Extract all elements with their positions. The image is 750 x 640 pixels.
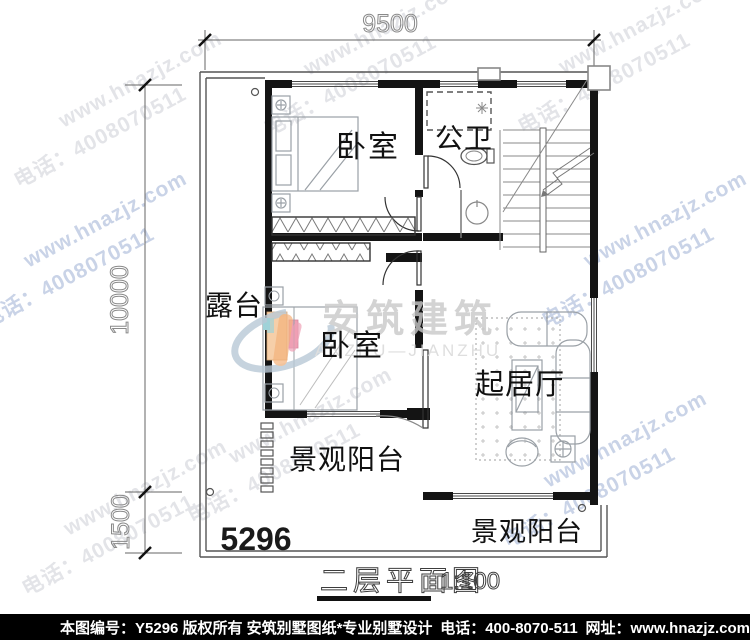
footer-site: 网址：www.hnazjz.com (586, 617, 750, 638)
label-balcony-left: 景观阳台 (289, 444, 405, 475)
dim-left-main-value: 10000 (106, 265, 134, 335)
logo-teal-stroke (267, 318, 274, 333)
drawing-sheet: www.hnazjz.com电话：4008070511www.hnazjz.co… (0, 0, 750, 640)
footer-bar: 本图编号：Y5296 版权所有 安筑别墅图纸*专业别墅设计 电话：400-807… (0, 614, 750, 640)
dim-top-value: 9500 (362, 10, 418, 38)
dimension-top: 9500 (198, 10, 601, 70)
footer-copyright: 版权所有 (182, 617, 242, 638)
label-plan-number: 5296 (220, 521, 291, 557)
dim-left-lower-value: 1500 (107, 494, 135, 550)
label-living-room: 起居厅 (475, 368, 565, 401)
bathroom-fixtures (427, 92, 494, 238)
sheet-title-scale: 1:100 (440, 568, 500, 595)
label-bedroom-top: 卧室 (336, 131, 400, 164)
footer-phone: 电话：400-8070-511 (440, 617, 578, 638)
label-terrace: 露台 (205, 290, 263, 321)
dimension-left: 10000 1500 (106, 79, 182, 559)
balcony-trellis (261, 423, 273, 492)
label-bathroom: 公卫 (435, 123, 493, 154)
label-balcony-bottom: 景观阳台 (471, 517, 583, 547)
footer-sheet-no: 本图编号：Y5296 (60, 617, 178, 638)
floor-plan-drawing: 9500 10000 1500 (0, 0, 750, 614)
sheet-title: 二层平面图 1:100 (317, 565, 500, 601)
staircase (500, 80, 594, 252)
label-bedroom-bottom: 卧室 (320, 330, 384, 363)
title-underline (317, 596, 431, 601)
footer-brand: 安筑别墅图纸*专业别墅设计 (247, 617, 433, 638)
